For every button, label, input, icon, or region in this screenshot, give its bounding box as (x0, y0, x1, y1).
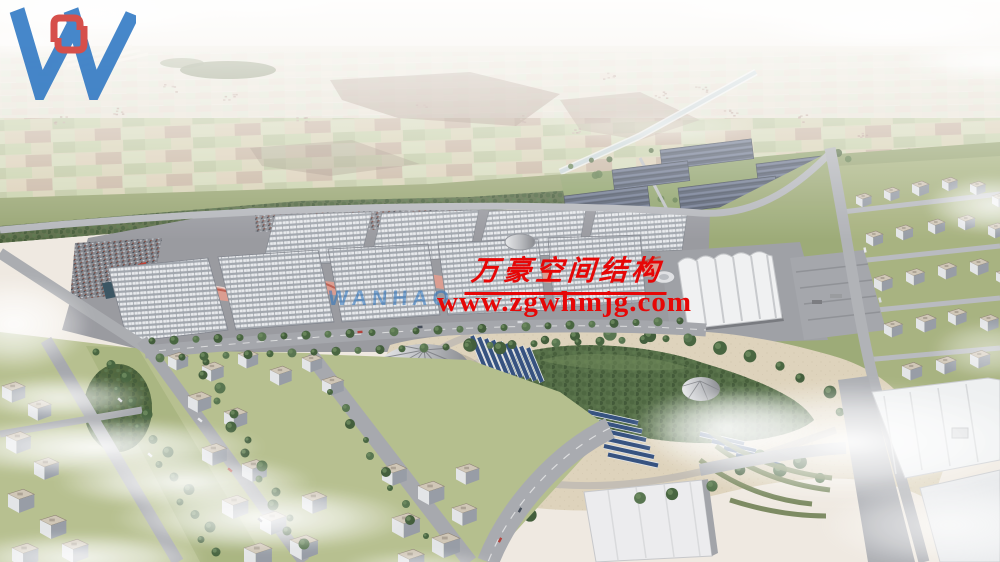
aerial-rendering: WANHAO 万豪空间结构 www.zgwhmjg.com (0, 0, 1000, 562)
watermark-website-url: www.zgwhmjg.com (437, 286, 692, 319)
wanhao-w-logo-icon (0, 0, 136, 100)
